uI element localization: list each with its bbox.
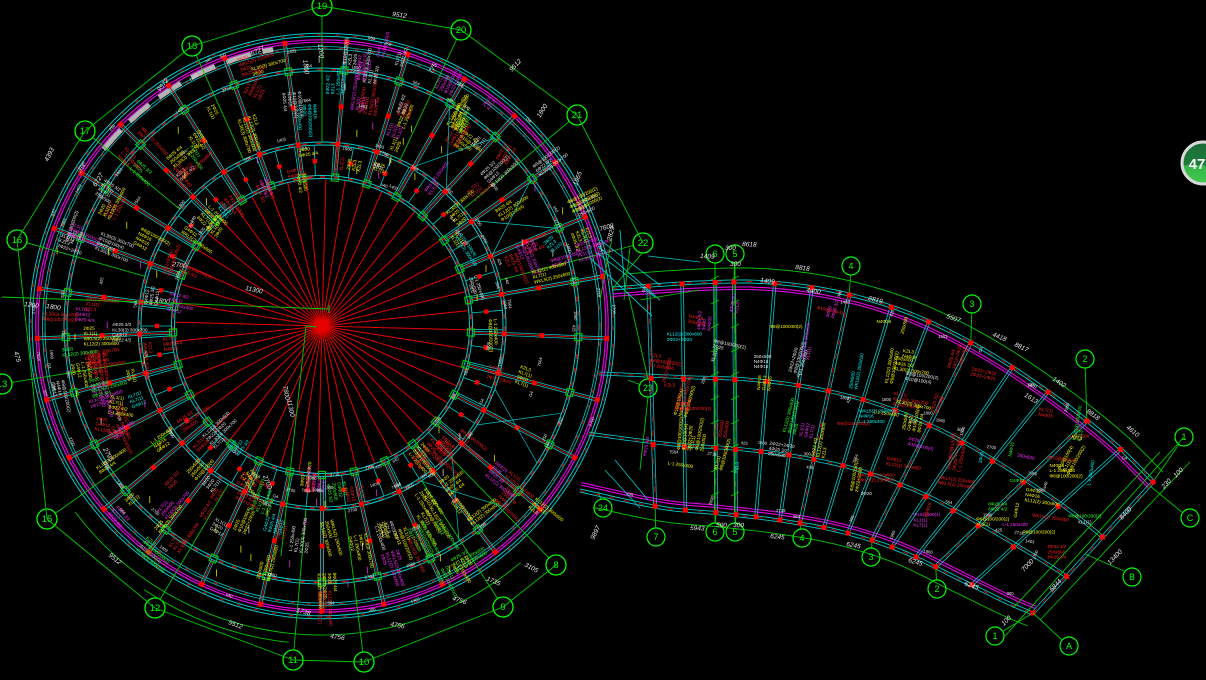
svg-text:18: 18 <box>187 41 198 52</box>
svg-text:KZL3: KZL3 <box>85 306 97 312</box>
svg-text:KL7(1): KL7(1) <box>913 523 927 528</box>
svg-text:10: 10 <box>359 657 370 668</box>
svg-text:425: 425 <box>572 325 577 333</box>
svg-text:564: 564 <box>945 499 953 505</box>
svg-text:425: 425 <box>806 464 814 470</box>
svg-text:8Φ25 4/4: 8Φ25 4/4 <box>1048 555 1067 560</box>
svg-text:3: 3 <box>969 299 974 309</box>
svg-text:8: 8 <box>553 560 558 571</box>
svg-text:7564: 7564 <box>301 97 311 103</box>
svg-text:2: 2 <box>1082 354 1087 364</box>
svg-text:N4Φ16: N4Φ16 <box>754 364 769 369</box>
svg-text:300: 300 <box>956 427 964 433</box>
svg-text:2718: 2718 <box>776 508 786 513</box>
svg-text:G4Φ12: G4Φ12 <box>1010 478 1025 483</box>
svg-text:13: 13 <box>0 379 7 390</box>
svg-text:1960: 1960 <box>307 475 317 481</box>
svg-text:L-1 250x400: L-1 250x400 <box>859 419 885 424</box>
svg-text:1800: 1800 <box>1036 488 1046 493</box>
svg-text:300: 300 <box>804 452 812 457</box>
svg-text:3: 3 <box>868 552 873 562</box>
svg-text:22: 22 <box>638 238 649 249</box>
svg-text:1: 1 <box>992 631 997 641</box>
svg-text:B: B <box>1129 572 1135 582</box>
svg-text:4: 4 <box>848 261 853 271</box>
svg-text:1800: 1800 <box>882 397 892 402</box>
svg-text:KZL3: KZL3 <box>137 343 143 355</box>
svg-text:564: 564 <box>793 514 801 519</box>
svg-text:N4Φ16: N4Φ16 <box>877 319 892 324</box>
svg-text:11: 11 <box>288 655 298 666</box>
svg-text:2Φ22+2Φ20: 2Φ22+2Φ20 <box>667 337 693 342</box>
svg-text:7: 7 <box>653 532 658 542</box>
svg-text:500: 500 <box>716 522 727 529</box>
svg-text:KL12(2) 300x600: KL12(2) 300x600 <box>84 341 120 347</box>
svg-text:1409: 1409 <box>700 253 715 261</box>
svg-text:WKL5(2) 250x600: WKL5(2) 250x600 <box>858 478 895 483</box>
svg-text:4: 4 <box>799 533 804 543</box>
svg-text:XL1(1): XL1(1) <box>1078 519 1092 524</box>
svg-text:300: 300 <box>733 522 744 529</box>
svg-text:564: 564 <box>132 300 138 308</box>
svg-text:7564: 7564 <box>36 351 42 361</box>
svg-text:KZL3: KZL3 <box>664 383 675 388</box>
svg-text:KZL3: KZL3 <box>366 59 372 71</box>
svg-text:2700: 2700 <box>611 304 617 314</box>
svg-text:G4: G4 <box>306 63 313 68</box>
svg-text:Φ8@100/200(2): Φ8@100/200(2) <box>317 591 323 625</box>
svg-text:1960: 1960 <box>49 349 55 359</box>
svg-text:C: C <box>1187 513 1194 523</box>
svg-text:1960: 1960 <box>573 311 579 321</box>
svg-text:3Φ20: 3Φ20 <box>861 491 873 496</box>
svg-text:47: 47 <box>1189 156 1206 173</box>
svg-text:6Φ22 4/2: 6Φ22 4/2 <box>988 507 1007 512</box>
svg-text:300: 300 <box>326 485 334 490</box>
svg-text:24: 24 <box>598 503 608 513</box>
svg-text:300: 300 <box>730 261 741 268</box>
svg-text:1800: 1800 <box>923 410 933 415</box>
svg-text:L-1 250x400: L-1 250x400 <box>1002 522 1028 527</box>
svg-text:G4: G4 <box>1122 456 1128 461</box>
svg-text:XL1(1): XL1(1) <box>976 522 990 527</box>
svg-text:300: 300 <box>1007 591 1015 596</box>
svg-text:1403: 1403 <box>938 334 948 339</box>
svg-text:Φ8@100/200(2): Φ8@100/200(2) <box>1022 529 1056 534</box>
svg-text:425: 425 <box>740 440 748 446</box>
svg-text:Φ8@100/200(2): Φ8@100/200(2) <box>769 324 803 329</box>
svg-text:1960: 1960 <box>312 487 322 493</box>
svg-text:425: 425 <box>143 350 149 358</box>
svg-text:564: 564 <box>327 600 335 605</box>
svg-text:20: 20 <box>456 25 467 36</box>
svg-text:Φ8@100/200(2): Φ8@100/200(2) <box>1068 514 1102 519</box>
svg-text:2: 2 <box>934 584 939 594</box>
svg-text:8618: 8618 <box>742 241 757 249</box>
svg-text:425: 425 <box>1028 382 1036 387</box>
svg-text:1960: 1960 <box>983 513 993 518</box>
svg-text:250: 250 <box>61 331 66 339</box>
svg-text:300: 300 <box>725 245 736 252</box>
svg-text:425: 425 <box>995 527 1003 532</box>
svg-text:1403: 1403 <box>840 299 850 304</box>
svg-text:5943: 5943 <box>690 525 705 533</box>
svg-text:2700: 2700 <box>31 304 36 314</box>
svg-text:A: A <box>1066 641 1072 651</box>
svg-text:2718: 2718 <box>330 472 340 478</box>
svg-text:250: 250 <box>60 290 66 298</box>
